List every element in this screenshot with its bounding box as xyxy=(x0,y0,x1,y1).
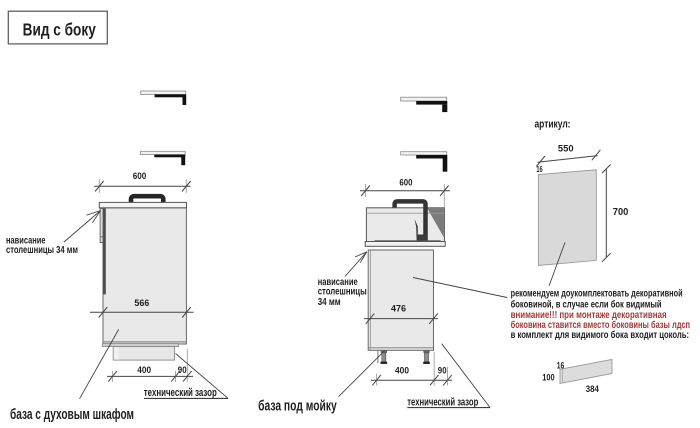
svg-text:550: 550 xyxy=(558,143,574,154)
svg-text:технический зазор: технический зазор xyxy=(407,396,478,408)
svg-text:700: 700 xyxy=(613,207,629,218)
svg-text:технический зазор: технический зазор xyxy=(144,387,217,399)
svg-text:566: 566 xyxy=(134,298,149,309)
svg-text:384: 384 xyxy=(586,384,600,395)
svg-text:боковиной, в случае если бок в: боковиной, в случае если бок видимый xyxy=(511,298,662,310)
svg-text:Вид с боку: Вид с боку xyxy=(23,19,96,39)
svg-text:90: 90 xyxy=(178,365,187,376)
svg-text:рекомендуем доукомплектовать д: рекомендуем доукомплектовать декоративно… xyxy=(511,289,683,300)
svg-text:столешницы 34 мм: столешницы 34 мм xyxy=(6,244,78,256)
svg-text:в комплект для видимого бока в: в комплект для видимого бока входит цоко… xyxy=(511,329,689,341)
svg-text:400: 400 xyxy=(395,366,409,377)
svg-text:400: 400 xyxy=(137,365,151,376)
svg-text:16: 16 xyxy=(536,164,542,174)
svg-text:90: 90 xyxy=(438,366,447,377)
svg-text:600: 600 xyxy=(133,171,147,181)
svg-text:34 мм: 34 мм xyxy=(318,296,341,308)
svg-text:16: 16 xyxy=(557,360,565,370)
svg-text:база с духовым шкафом: база с духовым шкафом xyxy=(10,407,134,423)
svg-text:100: 100 xyxy=(542,373,554,384)
svg-text:600: 600 xyxy=(399,178,412,188)
svg-text:артикул:: артикул: xyxy=(535,119,571,131)
svg-text:476: 476 xyxy=(391,304,406,315)
svg-text:база под мойку: база под мойку xyxy=(258,399,337,415)
